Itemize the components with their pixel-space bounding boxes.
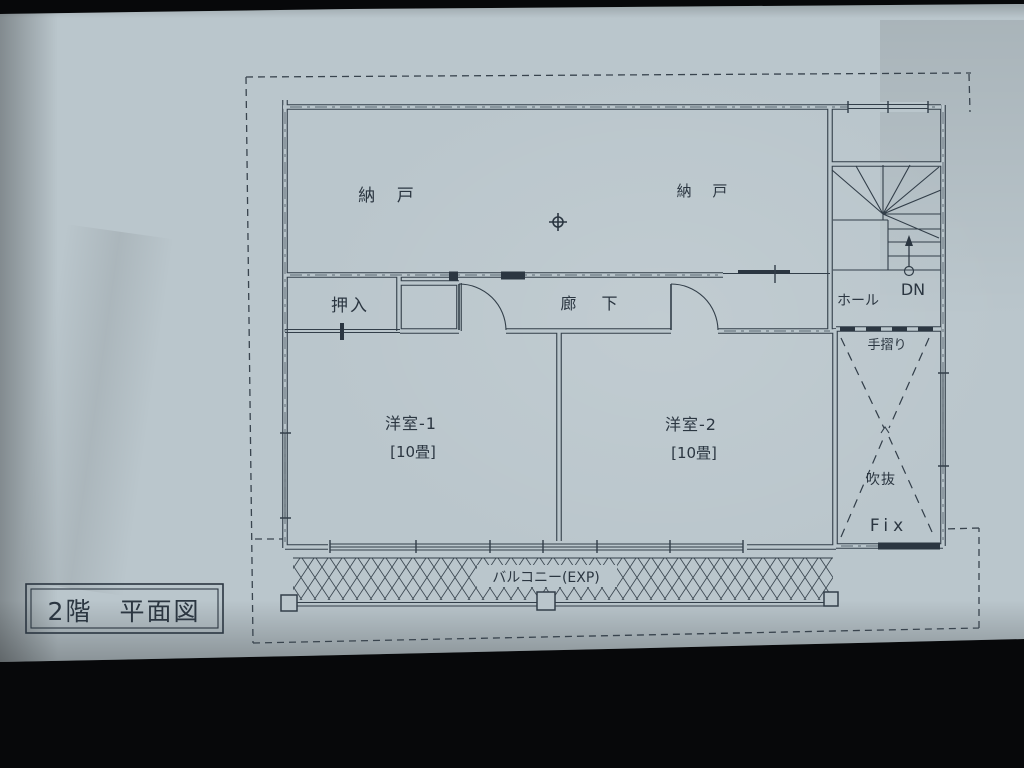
label-void: 吹抜 (866, 472, 896, 488)
floorplan-drawing: 納 戸 納 戸 押入 廊 下 ホール DN 手摺り 吹抜 Fix 洋室-1 [1… (0, 0, 1024, 768)
label-balcony: バルコニー(EXP) (492, 570, 600, 586)
label-stairs-down: DN (901, 280, 925, 299)
label-storage-left: 納 戸 (358, 186, 421, 206)
drawing-title: 2階 平面図 (48, 597, 201, 626)
balcony-post-right (824, 592, 838, 606)
label-room2-name: 洋室-2 (665, 415, 717, 434)
label-room1-size: [10畳] (390, 443, 436, 461)
balcony-post-left (281, 595, 297, 611)
label-handrail: 手摺り (867, 338, 906, 353)
label-hall: ホール (837, 293, 879, 309)
stair-top-window (848, 101, 928, 113)
label-corridor: 廊 下 (560, 294, 627, 313)
balcony-window-band (328, 540, 747, 553)
label-room1-name: 洋室-1 (385, 414, 437, 433)
label-closet: 押入 (331, 296, 369, 316)
label-room2-size: [10畳] (671, 444, 717, 462)
balcony-post-center (537, 592, 555, 610)
label-storage-right: 納 戸 (677, 182, 736, 200)
closet-door-mullion (340, 323, 344, 340)
photo-of-floorplan: 納 戸 納 戸 押入 廊 下 ホール DN 手摺り 吹抜 Fix 洋室-1 [1… (0, 0, 1024, 768)
storage-sliding-panel (738, 270, 790, 274)
label-fix-window: Fix (870, 516, 908, 536)
fix-window-sill (878, 543, 940, 550)
